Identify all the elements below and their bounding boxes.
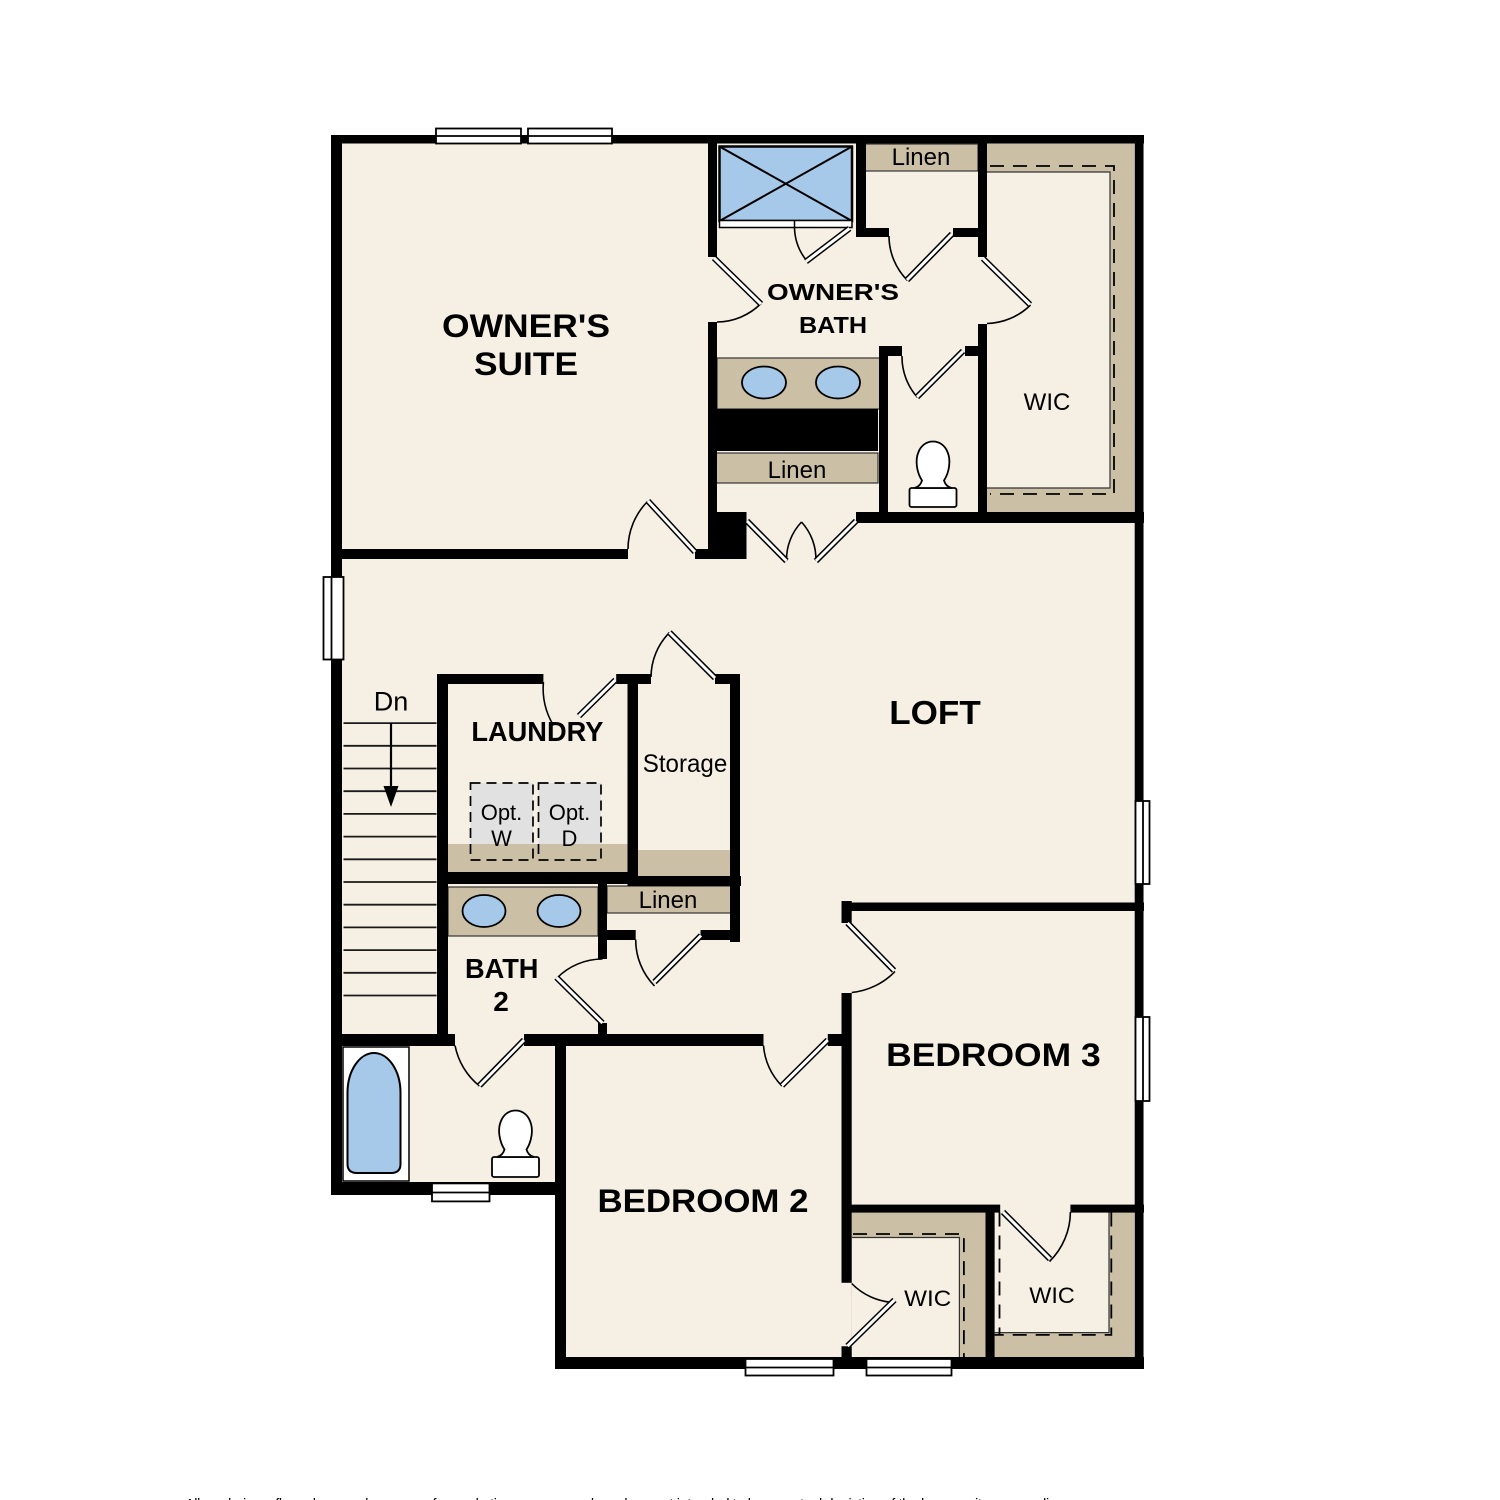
svg-text:BEDROOM 3: BEDROOM 3 [886, 1037, 1101, 1073]
svg-text:W: W [491, 826, 512, 851]
svg-text:Dn: Dn [374, 687, 409, 717]
svg-text:Opt.: Opt. [481, 800, 523, 825]
svg-text:OWNER'S: OWNER'S [442, 308, 610, 344]
svg-text:WIC: WIC [904, 1286, 951, 1311]
svg-text:BATH: BATH [465, 953, 539, 984]
svg-text:2: 2 [493, 986, 509, 1017]
svg-text:BEDROOM 2: BEDROOM 2 [598, 1183, 809, 1219]
svg-text:Linen: Linen [892, 144, 951, 171]
svg-text:LAUNDRY: LAUNDRY [471, 716, 603, 747]
svg-text:Opt.: Opt. [549, 800, 591, 825]
svg-text:Storage: Storage [643, 750, 728, 778]
svg-text:WIC: WIC [1024, 389, 1071, 416]
svg-text:Linen: Linen [639, 887, 698, 914]
svg-text:WIC: WIC [1029, 1283, 1075, 1308]
svg-text:Linen: Linen [768, 457, 827, 484]
svg-text:SUITE: SUITE [474, 346, 578, 382]
svg-text:BATH: BATH [799, 312, 867, 338]
svg-text:OWNER'S: OWNER'S [767, 279, 899, 305]
svg-text:LOFT: LOFT [889, 694, 981, 731]
svg-text:D: D [562, 826, 578, 851]
